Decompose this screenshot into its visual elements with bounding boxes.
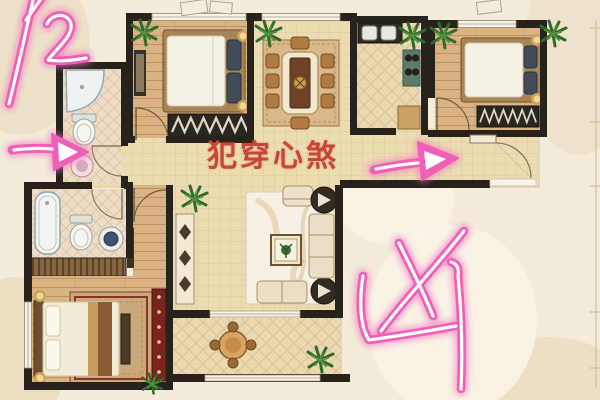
kitchen-counter (398, 106, 420, 129)
bed (461, 38, 541, 102)
toilet (72, 114, 96, 145)
dining-table (282, 52, 318, 114)
bed (34, 300, 119, 378)
bedroom2-window (458, 21, 516, 28)
kitchen-sink (358, 23, 402, 43)
master-bedroom-furniture (34, 289, 166, 384)
balcony-rail-window (205, 375, 320, 381)
wardrobe (477, 106, 539, 127)
toilet (70, 215, 92, 250)
dining-furniture (263, 37, 339, 129)
bed-bench (121, 314, 130, 364)
suite-corridor-floor (133, 185, 166, 276)
balcony-slider-window (210, 311, 300, 317)
armchair (283, 186, 313, 206)
bedroom1-window (152, 14, 246, 21)
stove (403, 50, 420, 86)
swivel-chair (311, 278, 337, 304)
floorplan-svg (0, 0, 600, 400)
bathtub (35, 192, 60, 254)
closet (31, 258, 126, 276)
vanity-sink (99, 227, 123, 251)
feng-shui-floorplan-image: 犯穿心煞 (0, 0, 600, 400)
lamp-icon (34, 290, 46, 302)
swivel-chair (311, 187, 337, 213)
coffee-table (271, 235, 301, 265)
master-window (25, 302, 32, 368)
fengshui-warning-label: 犯穿心煞 (207, 142, 377, 172)
bed (163, 30, 245, 112)
dining-window (262, 14, 340, 21)
decor-cabinet (176, 214, 194, 304)
tv-cabinet (152, 289, 166, 381)
wardrobe (168, 114, 252, 137)
